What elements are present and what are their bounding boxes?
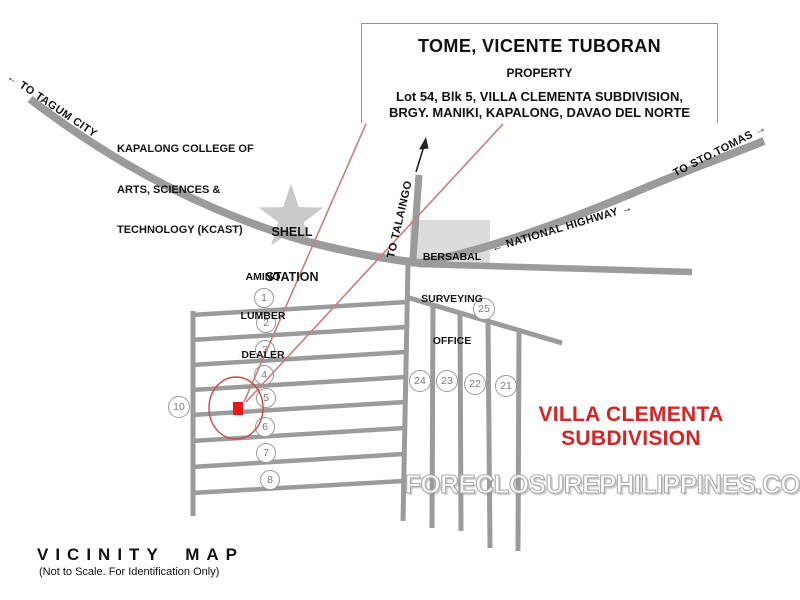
block-number: 5 bbox=[263, 392, 269, 404]
road-row-6 bbox=[191, 428, 405, 441]
kcast-line2: ARTS, SCIENCES & bbox=[117, 184, 254, 198]
shell-line1: SHELL bbox=[252, 225, 332, 240]
property-subtitle: PROPERTY bbox=[362, 66, 717, 80]
block-number: 10 bbox=[173, 401, 185, 413]
road-col-4 bbox=[518, 331, 519, 551]
block-number: 8 bbox=[267, 474, 273, 486]
block-circle-22: 22 bbox=[464, 373, 486, 395]
block-circle-10: 10 bbox=[168, 396, 190, 418]
property-marker bbox=[233, 402, 243, 415]
kcast-line3: TECHNOLOGY (KCAST) bbox=[117, 224, 254, 238]
road-label-to-sto-tomas: TO STO.TOMAS → bbox=[671, 122, 768, 179]
block-number: 24 bbox=[414, 375, 426, 387]
subdivision-name-line1: VILLA CLEMENTA bbox=[522, 403, 740, 427]
road-row-5 bbox=[191, 402, 405, 415]
block-number: 23 bbox=[441, 375, 453, 387]
property-owner-title: TOME, VICENTE TUBORAN bbox=[362, 36, 717, 57]
bersabal-line1: BERSABAL bbox=[411, 250, 493, 264]
property-address: Lot 54, Blk 5, VILLA CLEMENTA SUBDIVISIO… bbox=[362, 89, 717, 121]
kcast-label: KAPALONG COLLEGE OF ARTS, SCIENCES & TEC… bbox=[117, 116, 254, 265]
road-label-national-highway: ← NATIONAL HIGHWAY → bbox=[490, 202, 634, 255]
bersabal-office-label: BERSABAL SURVEYING OFFICE bbox=[411, 222, 493, 376]
property-address-line2: BRGY. MANIKI, KAPALONG, DAVAO DEL NORTE bbox=[362, 105, 717, 121]
block-circle-5: 5 bbox=[256, 388, 276, 408]
bersabal-line3: OFFICE bbox=[411, 334, 493, 348]
vicinity-map: 1 2 3 4 5 6 7 8 10 24 23 22 21 25 TOME, … bbox=[0, 0, 800, 600]
amino-line3: DEALER bbox=[223, 349, 303, 362]
amino-line2: LUMBER bbox=[223, 310, 303, 323]
property-callout-box: TOME, VICENTE TUBORAN PROPERTY Lot 54, B… bbox=[361, 23, 718, 123]
road-row-7 bbox=[191, 454, 404, 467]
property-address-line1: Lot 54, Blk 5, VILLA CLEMENTA SUBDIVISIO… bbox=[362, 89, 717, 105]
amino-line1: AMINO bbox=[223, 271, 303, 284]
vicinity-map-note: (Not to Scale. For Identification Only) bbox=[39, 566, 219, 578]
block-number: 6 bbox=[262, 421, 268, 433]
block-circle-6: 6 bbox=[255, 417, 275, 437]
block-number: 21 bbox=[500, 380, 512, 392]
block-number: 22 bbox=[469, 378, 481, 390]
road-row-8 bbox=[191, 481, 404, 493]
watermark: FORECLOSUREPHILIPPINES.COM bbox=[405, 469, 800, 500]
block-circle-21: 21 bbox=[495, 375, 517, 397]
bersabal-line2: SURVEYING bbox=[411, 292, 493, 306]
subdivision-name-line2: SUBDIVISION bbox=[522, 427, 740, 451]
block-circle-8: 8 bbox=[260, 470, 280, 490]
direction-arrow-icon bbox=[416, 137, 429, 172]
amino-lumber-label: AMINO LUMBER DEALER bbox=[223, 245, 303, 388]
block-number: 7 bbox=[263, 447, 269, 459]
block-circle-7: 7 bbox=[256, 443, 276, 463]
subdivision-name: VILLA CLEMENTA SUBDIVISION bbox=[522, 403, 740, 451]
kcast-line1: KAPALONG COLLEGE OF bbox=[117, 143, 254, 157]
vicinity-map-title: VICINITY MAP bbox=[37, 545, 244, 565]
road-label-to-tagum-city: ← TO TAGUM CITY bbox=[5, 71, 99, 140]
